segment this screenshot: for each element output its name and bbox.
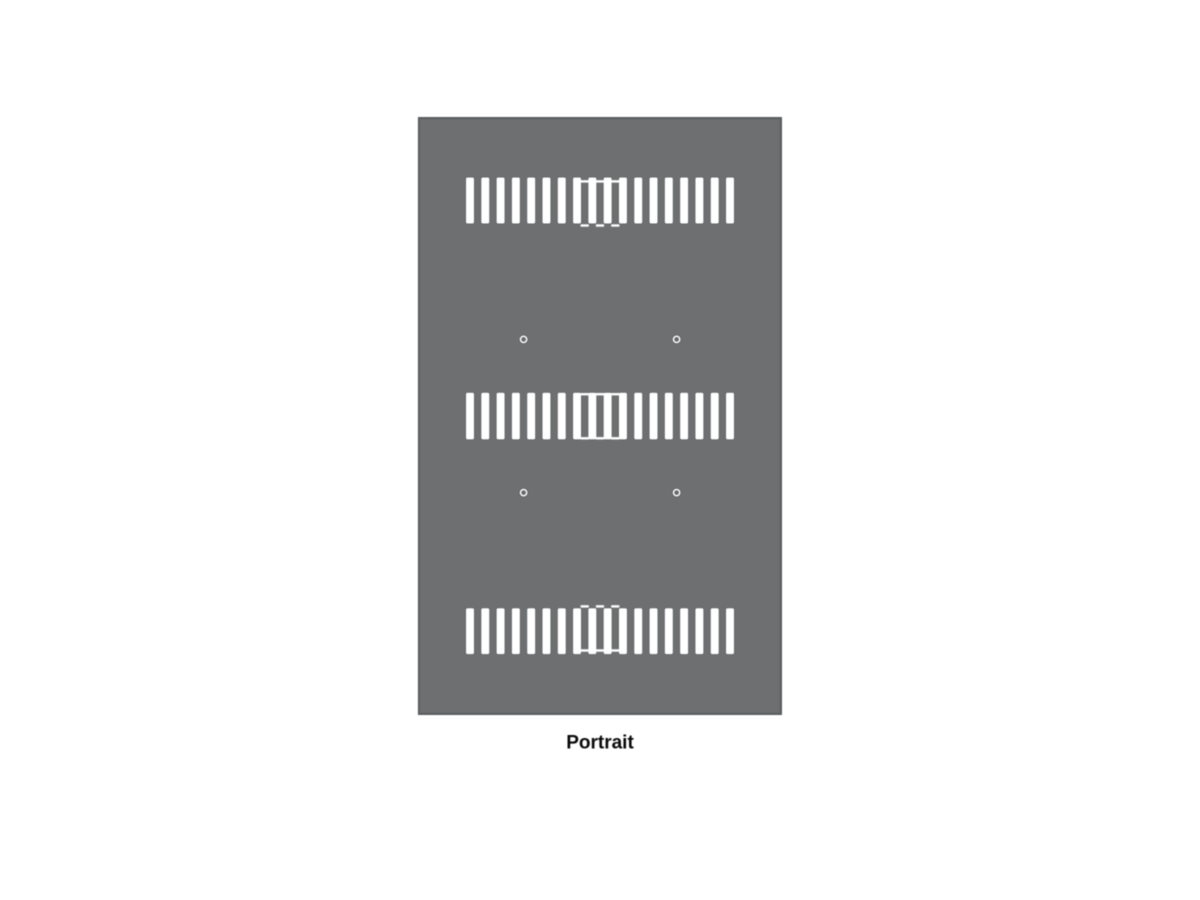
svg-text:Portrait: Portrait	[566, 732, 634, 753]
